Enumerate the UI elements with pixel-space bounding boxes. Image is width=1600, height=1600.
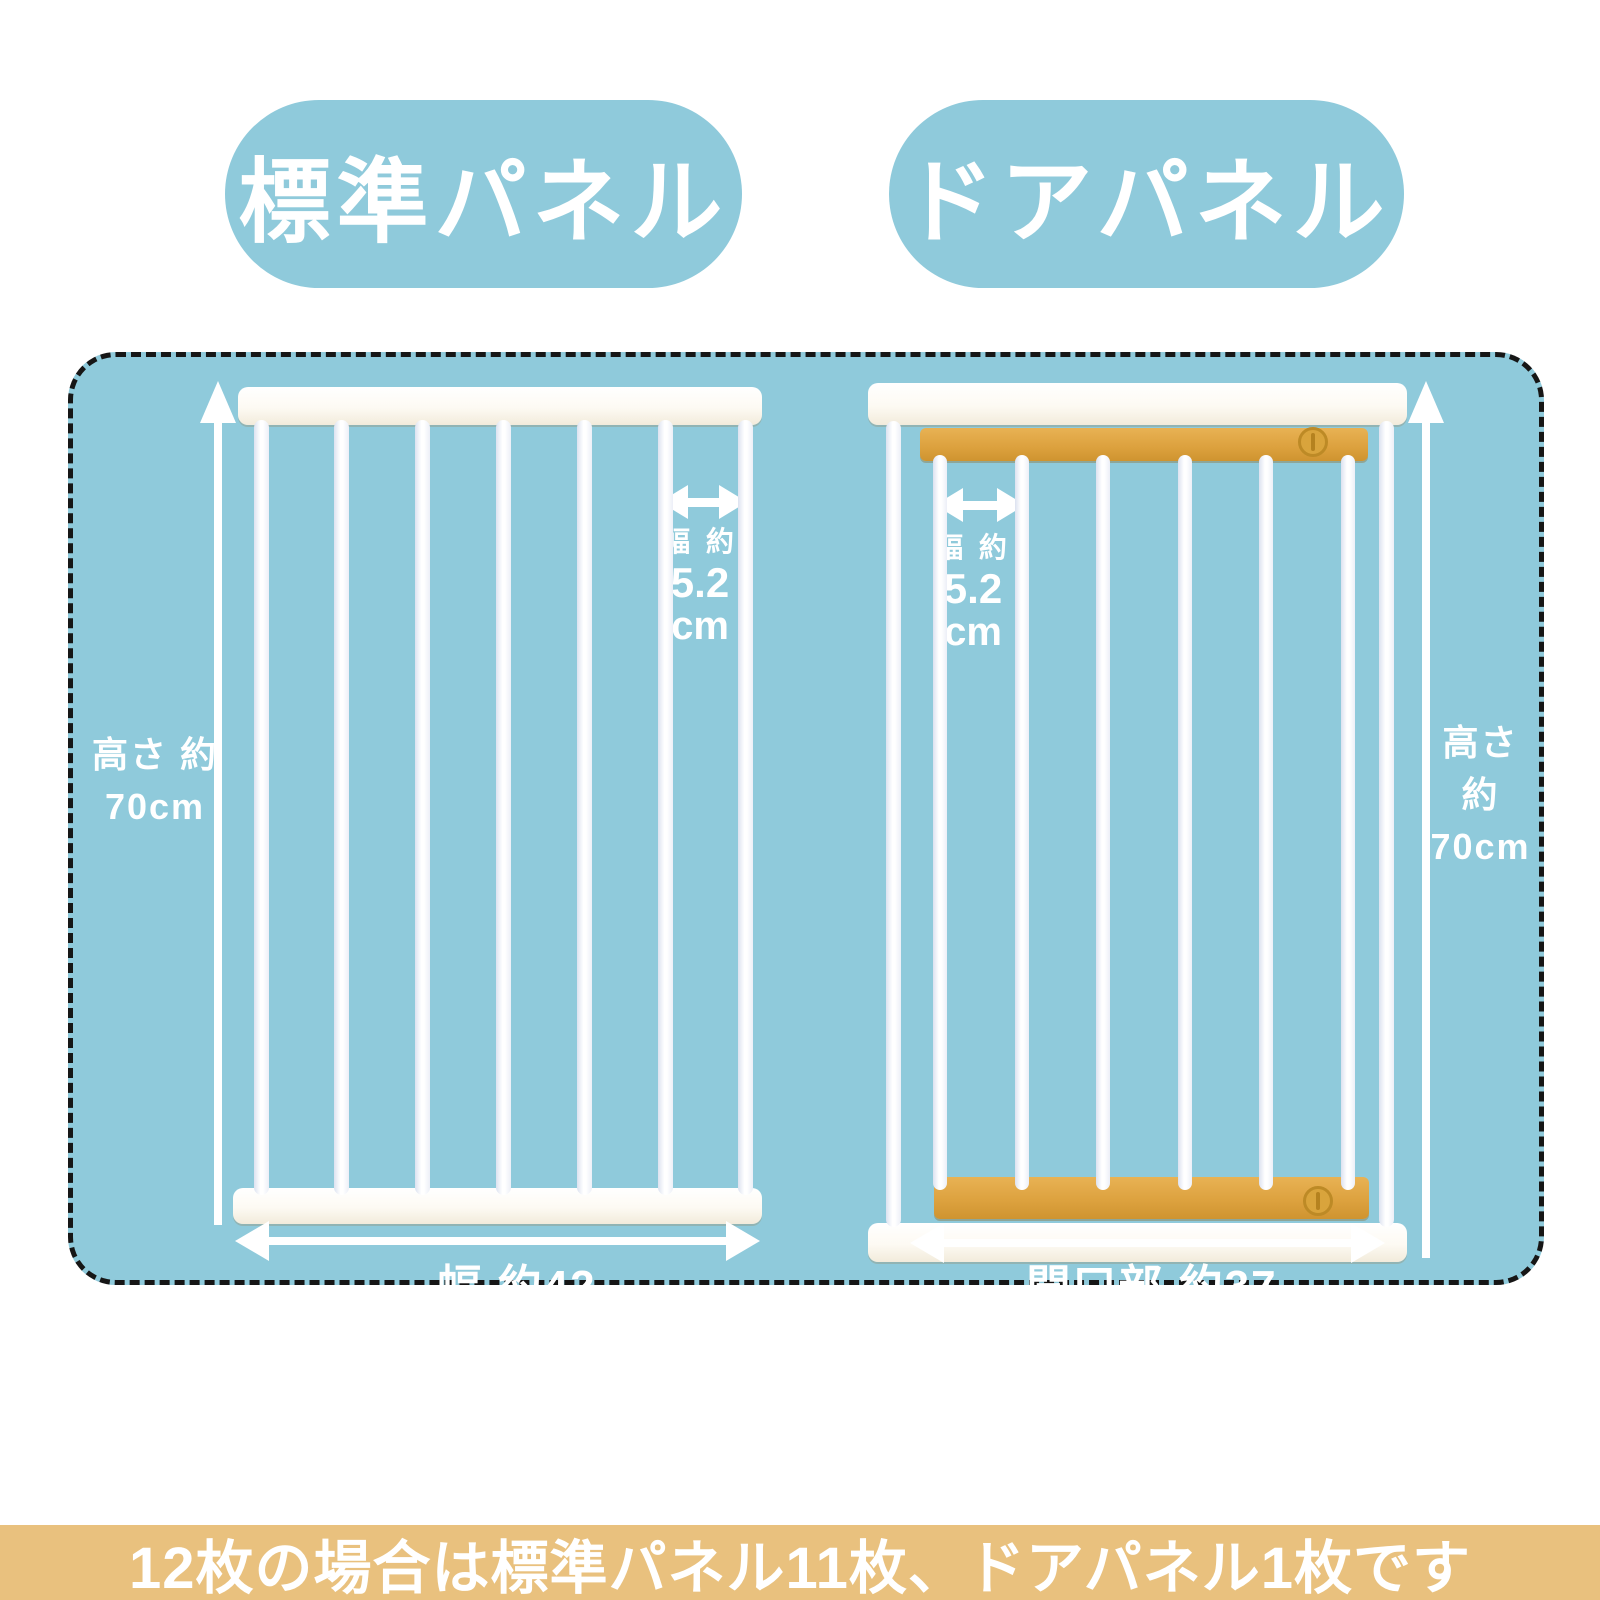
door-gate-bar [933,455,947,1190]
door-gate-bar [1015,455,1029,1190]
door-top-lock-knob-icon [1298,427,1328,457]
standard-gate-bar [254,420,269,1195]
door-panel-title: ドアパネル [902,128,1390,261]
door-frame-bar [1379,421,1394,1227]
door-gate-bar [1178,455,1192,1190]
footer-text: 12枚の場合は標準パネル11枚、ドアパネル1枚です [129,1521,1471,1600]
product-diagram: 標準パネル ドアパネル 高さ 約 70cm 幅 約 5.2 cm 幅 約 [0,0,1600,1600]
door-gate-top-rail [868,383,1407,425]
door-bar-gap-arrow-icon [935,488,1025,522]
door-opening-label: 開口部 約37 [982,1250,1322,1314]
door-gate-bar [1259,455,1273,1190]
standard-gate-bar [415,420,430,1195]
standard-gate-bar [658,420,673,1195]
door-frame-bar [886,421,901,1227]
standard-gate-bar [496,420,511,1195]
standard-gate-bottom-rail [233,1188,762,1224]
standard-gate-top-rail [238,387,762,425]
standard-height-label: 高さ 約 70cm [85,729,225,833]
standard-gate-bar [738,420,753,1195]
door-height-label: 高さ 約 70cm [1418,717,1543,873]
door-panel-title-pill: ドアパネル [889,100,1404,288]
standard-panel-title-pill: 標準パネル [225,100,742,288]
footer-banner: 12枚の場合は標準パネル11枚、ドアパネル1枚です [0,1525,1600,1600]
door-gate-bar [1096,455,1110,1190]
standard-bar-gap-arrow-icon [660,485,747,519]
standard-panel-title: 標準パネル [238,128,728,261]
standard-gate-bar [334,420,349,1195]
standard-width-label: 幅 約42 [367,1250,667,1314]
door-bottom-lock-knob-icon [1303,1186,1333,1216]
diagram-board: 高さ 約 70cm 幅 約 5.2 cm 幅 約42 幅 [68,352,1544,1285]
door-gate-bar [1341,455,1355,1190]
standard-gate-bar [577,420,592,1195]
